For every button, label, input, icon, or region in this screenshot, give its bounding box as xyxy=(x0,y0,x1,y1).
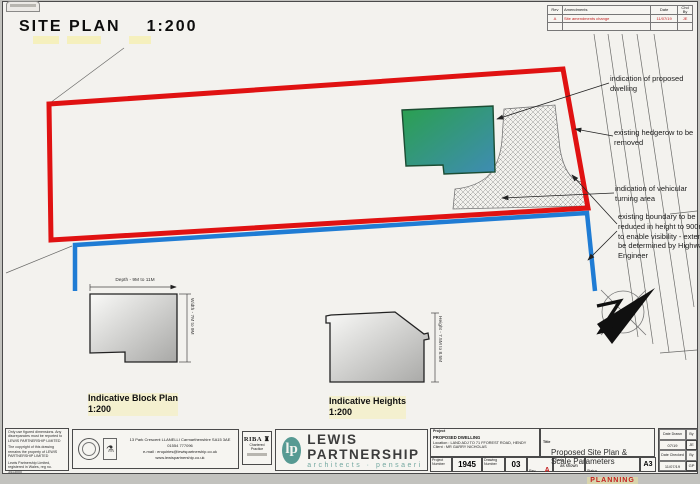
riba-name: RIBA xyxy=(244,436,262,443)
brand-wordmark: LEWIS PARTNERSHIP architects · pensaeri xyxy=(307,432,427,469)
drawing-title: Proposed Site Plan & Scale Parameters xyxy=(551,448,652,466)
seal-logo-icon xyxy=(78,438,100,460)
accreditation-icon: ⚗ xyxy=(103,438,117,460)
revision-letter: A xyxy=(548,15,563,23)
project-client-label: Client : xyxy=(433,445,445,449)
revision-table-header: Rev Amendments Date Chd By xyxy=(548,6,693,15)
annotation-turning-area: indication of vehicular turning area xyxy=(615,184,695,204)
project-label: Project xyxy=(433,430,537,434)
riba-reg-smudge xyxy=(247,453,267,456)
project-number-value: 1945 xyxy=(452,457,482,472)
heights-dim: Height - 7.5M to 8.5M xyxy=(437,316,442,380)
date-checked-label: Date Checked xyxy=(659,450,686,461)
heights-shape xyxy=(326,312,439,382)
drawing-number-label: Drawing Number xyxy=(484,459,503,467)
date-drawn-value: 07/19 xyxy=(659,440,686,451)
disclaimer-3: Lewis Partnership Limited, registered in… xyxy=(8,461,66,474)
revision-table: Rev Amendments Date Chd By A Site amendm… xyxy=(547,5,693,31)
amendments-col-header: Amendments xyxy=(562,6,650,15)
rev-label: Rev. xyxy=(529,469,536,473)
heights-caption-text: Indicative Heights xyxy=(329,396,406,407)
block-plan-depth-dim: Depth - 9M to 11M xyxy=(95,278,175,283)
block-plan-width-dim: Width - 7M to 9M xyxy=(189,298,194,360)
drawn-by-label: By xyxy=(686,429,697,440)
highlight-mark xyxy=(67,36,101,44)
address-line-4: www.lewispartnership.co.uk xyxy=(122,455,238,461)
heights-caption-scale: 1:200 xyxy=(329,407,406,418)
date-checked-value: 11/07/19 xyxy=(659,461,686,472)
drawing-title-line2: Scale Parameters xyxy=(551,457,652,466)
revision-chd: JE xyxy=(678,15,693,23)
proposed-dwelling-shape xyxy=(402,106,495,174)
revision-row-empty xyxy=(548,23,693,31)
dates-box: Date Drawn By 07/19 JE Date Checked By 1… xyxy=(658,428,698,472)
highlight-mark xyxy=(129,36,151,44)
project-client-value: MR GARRY NICHOLAS xyxy=(446,445,487,449)
page-title-scale: 1:200 xyxy=(147,18,198,35)
status-value: PLANNING xyxy=(587,477,638,484)
project-number-label: Project Number xyxy=(432,459,450,467)
date-col-header: Date xyxy=(651,6,678,15)
drawing-number-value: 03 xyxy=(505,457,527,472)
brand-box: lp LEWIS PARTNERSHIP architects · pensae… xyxy=(275,429,428,471)
disclaimer-2: The copyright of this drawing remains th… xyxy=(8,445,66,458)
block-plan-caption-text: Indicative Block Plan xyxy=(88,393,178,404)
title-box-label: Title xyxy=(543,440,550,444)
chd-col-header: Chd By xyxy=(678,6,693,15)
practice-address: 13 Park Crescent LLANELLI Carmarthenshir… xyxy=(122,437,238,461)
checked-by-label: By xyxy=(686,450,697,461)
drawing-sheet: SITE PLAN1:200 Rev Amendments Date Chd B… xyxy=(2,1,698,474)
riba-logo: RIBA ♜ xyxy=(243,435,271,443)
rev-value: A xyxy=(545,467,550,474)
project-client: Client : MR GARRY NICHOLAS xyxy=(433,445,537,449)
annotation-proposed-dwelling: indication of proposed dwelling xyxy=(610,74,690,94)
page-title: SITE PLAN1:200 xyxy=(19,18,197,36)
riba-box: RIBA ♜ Chartered Practice xyxy=(242,431,272,465)
heights-caption: Indicative Heights 1:200 xyxy=(329,396,406,419)
annotation-existing-hedgerow: existing hedgerow to be removed xyxy=(614,128,700,148)
block-plan-caption-scale: 1:200 xyxy=(88,404,178,415)
drawn-by-value: JE xyxy=(686,440,697,451)
project-number-label-cell: Project Number xyxy=(430,457,452,472)
practice-logos: ⚗ xyxy=(78,438,117,460)
highlight-mark xyxy=(33,36,59,44)
project-name: PROPOSED DWELLING xyxy=(433,435,537,440)
drawing-title-line1: Proposed Site Plan & xyxy=(551,448,652,457)
brand-roundel-icon: lp xyxy=(282,437,301,464)
drawing-number-label-cell: Drawing Number xyxy=(482,457,505,472)
rev-col-header: Rev xyxy=(548,6,563,15)
riba-crest-icon: ♜ xyxy=(264,436,270,443)
paper-size-box: A3 xyxy=(640,457,656,472)
north-arrow-icon xyxy=(597,288,655,344)
riba-subtitle: Chartered Practice xyxy=(243,443,271,451)
brand-tagline: architects · pensaeri xyxy=(307,462,427,469)
block-plan-shape xyxy=(90,284,191,362)
revision-row: A Site amendments change 11/07/19 JE xyxy=(548,15,693,23)
block-plan-caption: Indicative Block Plan 1:200 xyxy=(88,393,178,416)
rev-cell: Rev. A xyxy=(527,457,553,472)
disclaimer-box: Only use figured dimensions. Any discrep… xyxy=(5,428,69,471)
revision-date: 11/07/19 xyxy=(651,15,678,23)
brand-name: LEWIS PARTNERSHIP xyxy=(307,432,427,462)
practice-address-box: ⚗ 13 Park Crescent LLANELLI Carmarthensh… xyxy=(72,429,239,469)
project-box: Project PROPOSED DWELLING Location : LAN… xyxy=(430,428,540,457)
checked-by-value: GP xyxy=(686,461,697,472)
annotation-existing-boundary: existing boundary to be reduced in heigh… xyxy=(618,212,700,261)
date-drawn-label: Date Drawn xyxy=(659,429,686,440)
title-box: Title Proposed Site Plan & Scale Paramet… xyxy=(540,428,655,457)
page-title-text: SITE PLAN xyxy=(19,18,121,35)
status-label: Status xyxy=(587,469,597,473)
disclaimer-1: Only use figured dimensions. Any discrep… xyxy=(8,430,66,443)
revision-amendment: Site amendments change xyxy=(562,15,650,23)
